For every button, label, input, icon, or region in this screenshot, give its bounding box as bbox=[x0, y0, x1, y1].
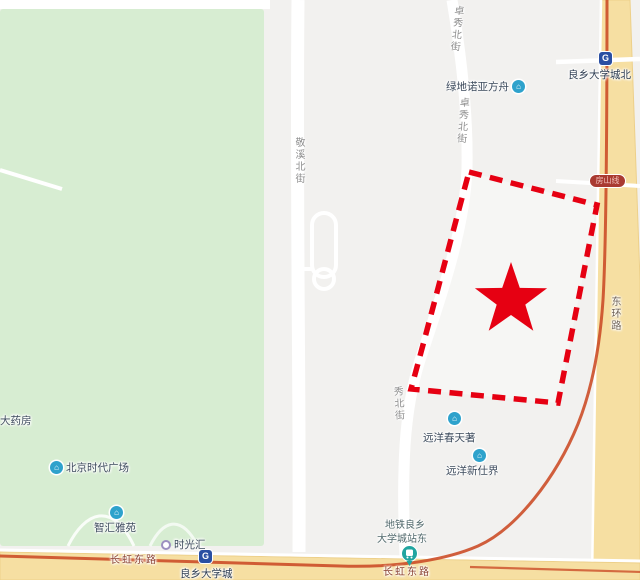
station-label-main[interactable]: 良乡大学城 bbox=[180, 566, 233, 580]
building-icon: ⌂ bbox=[50, 461, 63, 474]
park-area bbox=[0, 9, 264, 546]
street-label-jingxi: 敬溪北街 bbox=[291, 137, 306, 185]
metro-logo-icon[interactable]: G bbox=[199, 550, 212, 563]
poi-label-new-world[interactable]: 远洋新仕界 bbox=[446, 463, 499, 478]
poi-label-pharmacy[interactable]: 大药房 bbox=[0, 413, 32, 428]
building-icon: ⌂ bbox=[448, 412, 461, 425]
building-icon: ⌂ bbox=[110, 506, 123, 519]
road-jingxi bbox=[297, 0, 299, 552]
poi-label-times-square: 北京时代广场 bbox=[66, 460, 129, 475]
building-icon: ⌂ bbox=[473, 449, 486, 462]
poi-label-greenland: 绿地诺亚方舟 bbox=[446, 79, 509, 94]
busstop-label-line2[interactable]: 大学城站东 bbox=[377, 530, 427, 545]
metro-logo-icon[interactable]: G bbox=[599, 52, 612, 65]
poi-greenland[interactable]: 绿地诺亚方舟 ⌂ bbox=[446, 79, 525, 94]
busstop-label-line1[interactable]: 地铁良乡 bbox=[385, 516, 425, 531]
street-label-donghuan: 东环路 bbox=[607, 296, 622, 332]
map-geometry bbox=[0, 0, 640, 580]
transit-pin-icon[interactable] bbox=[401, 545, 418, 567]
street-label-xiu-lower: 秀北街 bbox=[389, 386, 406, 423]
poi-times-square[interactable]: ⌂ 北京时代广场 bbox=[50, 460, 129, 475]
road-top-strip bbox=[0, 0, 270, 9]
small-ring-icon bbox=[161, 540, 171, 550]
map-canvas[interactable]: 卓秀北街 卓秀北街 敬溪北街 秀北街 东环路 长虹东路 长虹东路 房山线 大药房… bbox=[0, 0, 640, 580]
metro-line-badge[interactable]: 房山线 bbox=[589, 174, 626, 188]
poi-label-zhihui[interactable]: 智汇雅苑 bbox=[94, 520, 136, 535]
road-label-changhong-west: 长虹东路 bbox=[110, 551, 158, 566]
poi-label-spring-villa[interactable]: 远洋春天著 bbox=[423, 430, 476, 445]
building-icon: ⌂ bbox=[512, 80, 525, 93]
station-label-north[interactable]: 良乡大学城北 bbox=[568, 67, 631, 82]
road-crossing bbox=[556, 59, 640, 62]
poi-shiguanghui[interactable]: 时光汇 bbox=[161, 537, 206, 552]
